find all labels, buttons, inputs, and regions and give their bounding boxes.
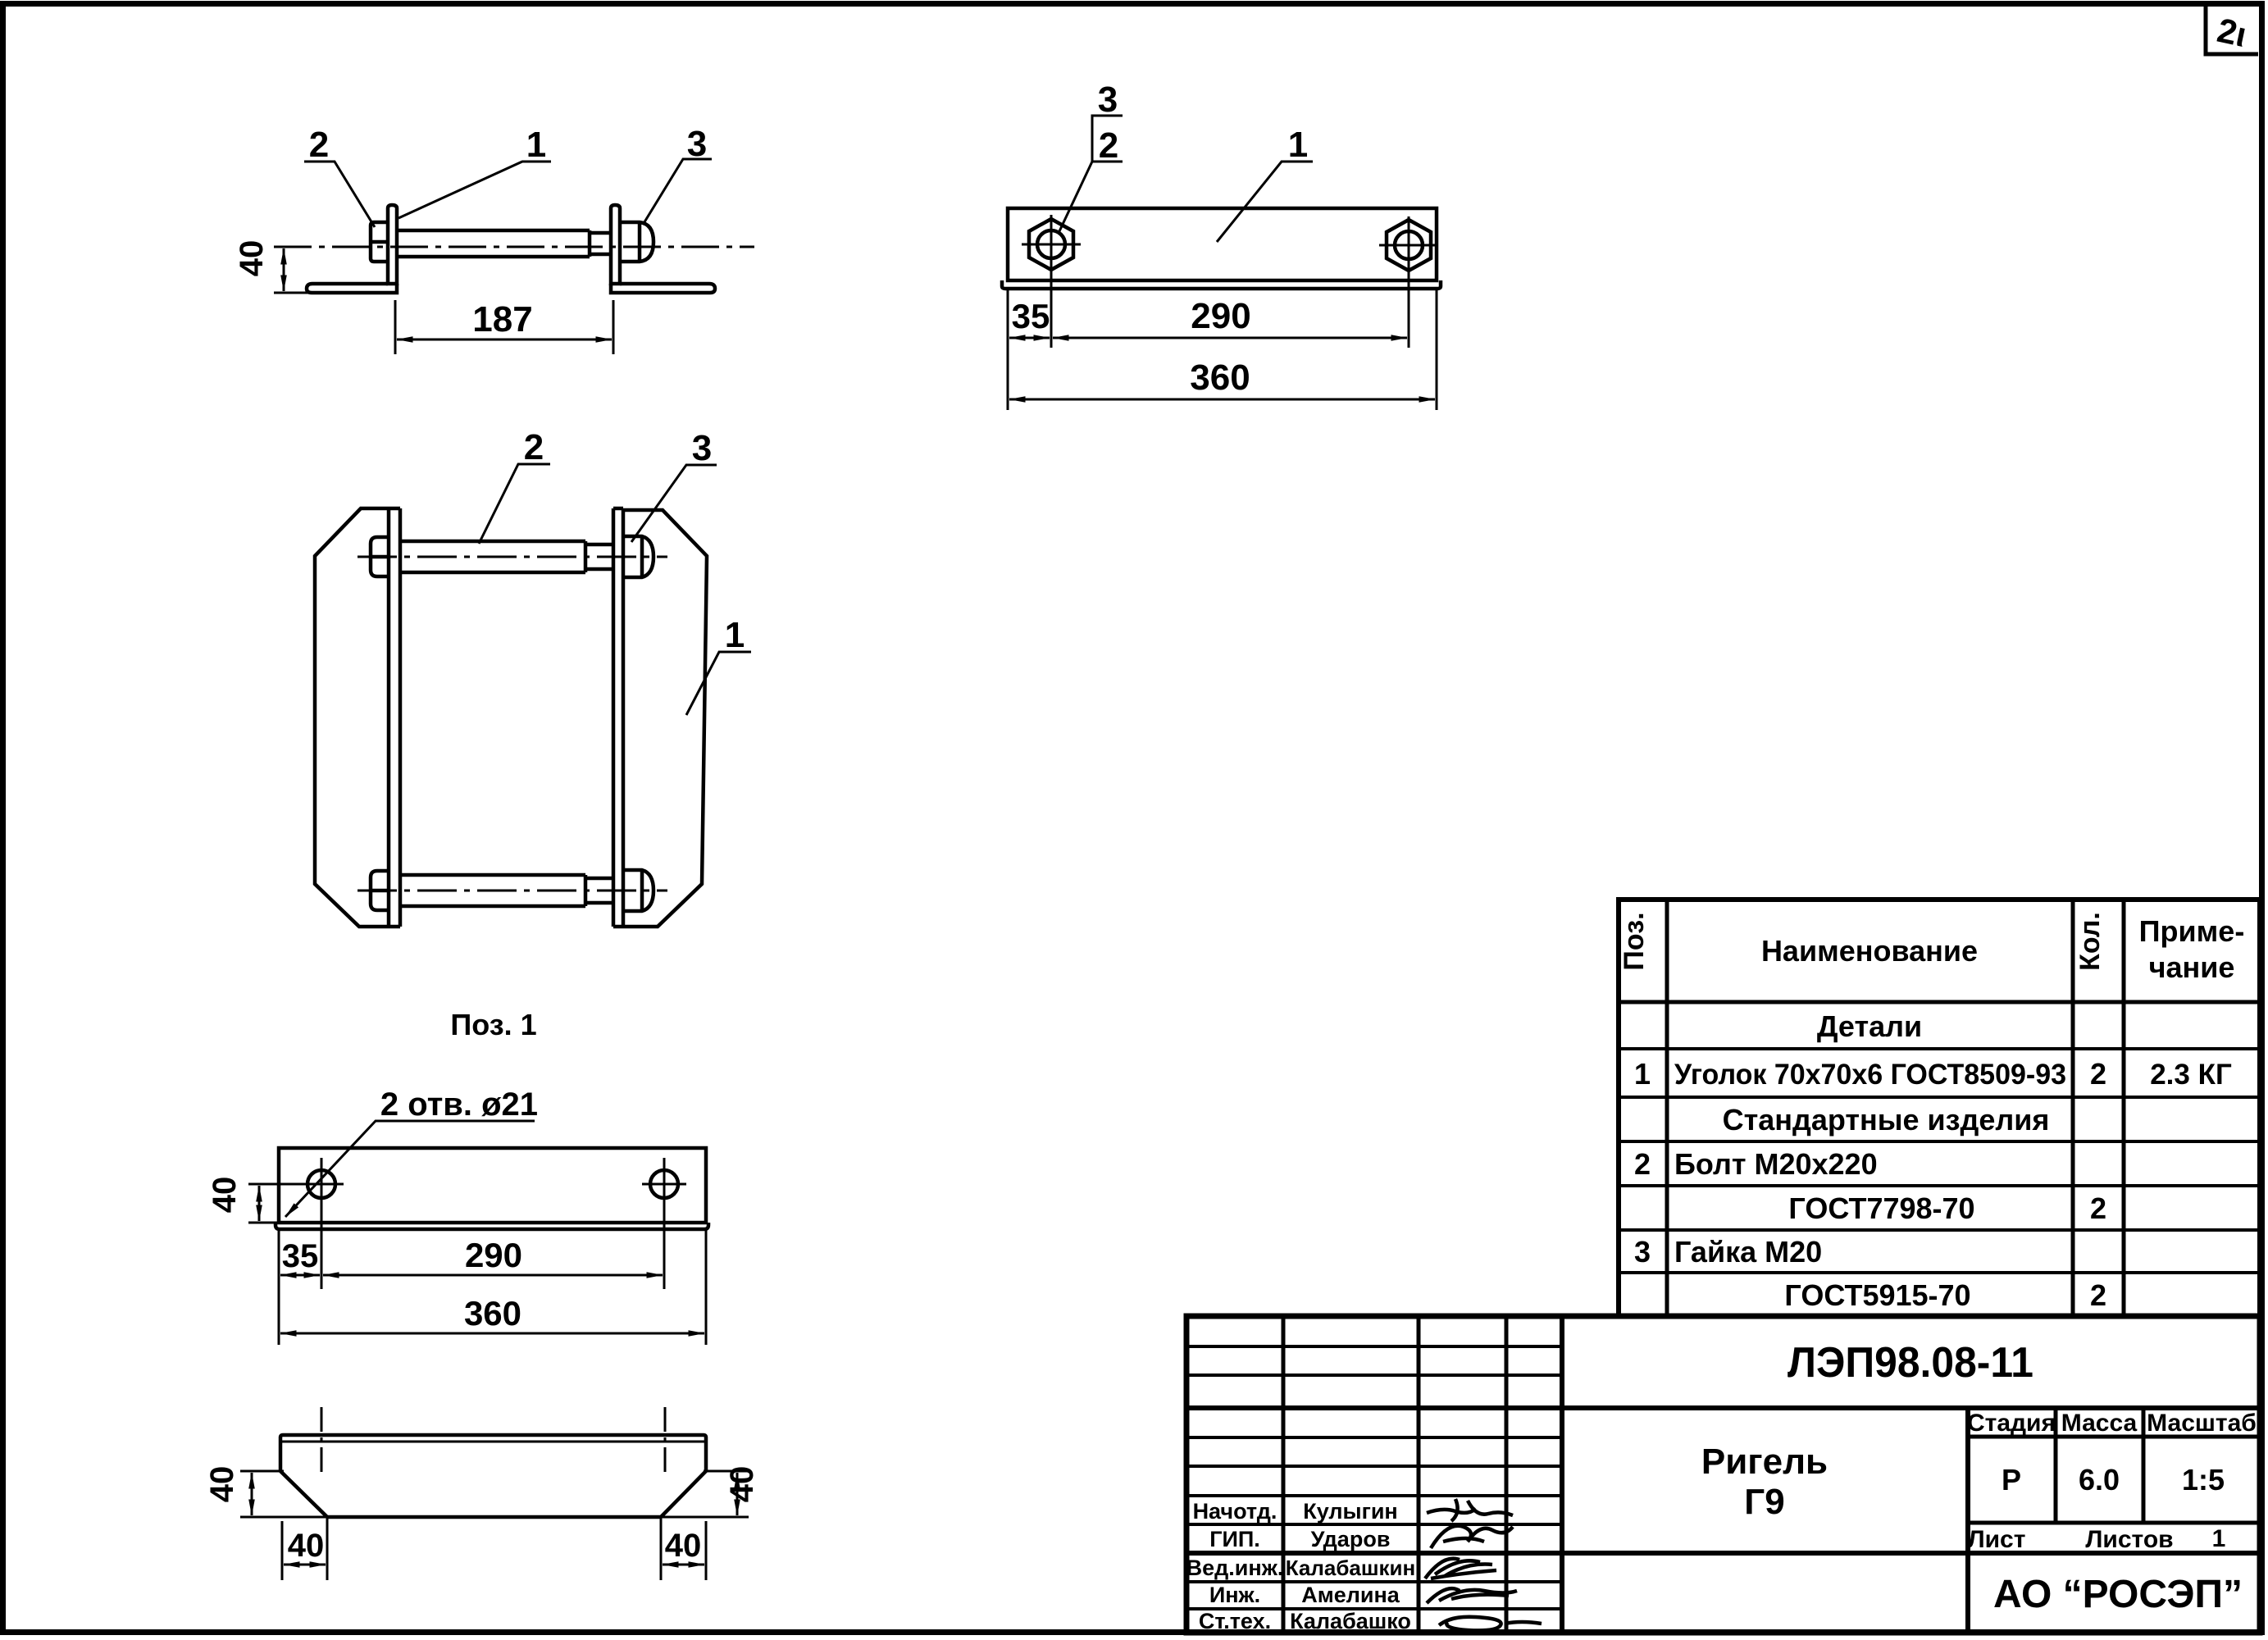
svg-text:Вед.инж.: Вед.инж. <box>1186 1556 1284 1580</box>
svg-text:Амелина: Амелина <box>1301 1583 1400 1607</box>
svg-text:Гайка М20: Гайка М20 <box>1674 1235 1822 1269</box>
svg-text:Ст.тех.: Ст.тех. <box>1199 1609 1271 1633</box>
svg-text:2: 2 <box>1634 1147 1651 1181</box>
svg-text:360: 360 <box>464 1294 521 1332</box>
svg-text:2 отв. ø21: 2 отв. ø21 <box>380 1086 538 1123</box>
svg-text:1: 1 <box>526 125 546 165</box>
svg-text:360: 360 <box>1190 358 1250 398</box>
svg-text:чание: чание <box>2149 950 2235 984</box>
svg-text:Поз.: Поз. <box>1619 912 1650 970</box>
svg-text:Калабашко: Калабашко <box>1290 1609 1411 1633</box>
svg-text:3: 3 <box>1098 80 1118 120</box>
svg-text:290: 290 <box>1191 296 1250 336</box>
svg-text:Масса: Масса <box>2061 1410 2138 1437</box>
svg-text:Инж.: Инж. <box>1209 1583 1260 1607</box>
svg-text:ЛЭП98.08-11: ЛЭП98.08-11 <box>1788 1339 2033 1387</box>
svg-text:Наименование: Наименование <box>1761 934 1978 968</box>
svg-text:АО “РОСЭП”: АО “РОСЭП” <box>1993 1573 2243 1616</box>
svg-text:1: 1 <box>725 615 745 655</box>
svg-text:Ригель: Ригель <box>1701 1442 1828 1482</box>
svg-text:Кол.: Кол. <box>2074 912 2106 971</box>
svg-text:Начотд.: Начотд. <box>1193 1499 1277 1524</box>
svg-text:Поз. 1: Поз. 1 <box>450 1008 536 1041</box>
svg-text:ГОСТ5915-70: ГОСТ5915-70 <box>1784 1278 1970 1312</box>
svg-text:ГИП.: ГИП. <box>1209 1527 1260 1551</box>
svg-text:Приме-: Приме- <box>2139 914 2245 948</box>
svg-text:1:5: 1:5 <box>2182 1463 2225 1496</box>
svg-text:187: 187 <box>472 299 532 339</box>
svg-text:35: 35 <box>1012 297 1050 335</box>
svg-text:Листов: Листов <box>2085 1526 2173 1553</box>
svg-text:Р: Р <box>2002 1463 2021 1496</box>
svg-text:Калабашкин: Калабашкин <box>1286 1556 1416 1580</box>
svg-text:Кулыгин: Кулыгин <box>1303 1499 1398 1524</box>
svg-text:Стадия: Стадия <box>1967 1410 2056 1437</box>
svg-text:Детали: Детали <box>1817 1009 1922 1043</box>
svg-text:40: 40 <box>234 240 270 277</box>
svg-text:ГОСТ7798-70: ГОСТ7798-70 <box>1788 1191 1974 1225</box>
svg-text:290: 290 <box>465 1236 522 1274</box>
svg-text:3: 3 <box>692 428 712 468</box>
svg-text:1: 1 <box>1288 125 1308 165</box>
svg-text:Лист: Лист <box>1968 1526 2026 1553</box>
svg-text:40: 40 <box>204 1466 240 1503</box>
svg-text:2.3 КГ: 2.3 КГ <box>2150 1059 2232 1091</box>
svg-text:2: 2 <box>309 125 329 165</box>
svg-text:40: 40 <box>207 1177 243 1214</box>
svg-text:1: 1 <box>2212 1525 2226 1552</box>
svg-text:Уголок 70х70х6 ГОСТ8509-93: Уголок 70х70х6 ГОСТ8509-93 <box>1674 1059 2066 1091</box>
svg-text:6.0: 6.0 <box>2079 1463 2120 1496</box>
svg-text:Ударов: Ударов <box>1311 1527 1391 1551</box>
svg-text:Стандартные изделия: Стандартные изделия <box>1723 1103 2050 1137</box>
svg-text:2: 2 <box>524 427 544 467</box>
svg-text:2: 2 <box>2090 1191 2106 1225</box>
svg-text:40: 40 <box>288 1528 325 1564</box>
svg-text:2: 2 <box>2090 1057 2106 1091</box>
svg-text:3: 3 <box>1634 1235 1651 1269</box>
svg-text:40: 40 <box>724 1466 760 1503</box>
svg-text:2ι: 2ι <box>2214 11 2250 54</box>
svg-text:2: 2 <box>1099 125 1118 166</box>
svg-text:Г9: Г9 <box>1744 1482 1784 1522</box>
svg-text:Масштаб: Масштаб <box>2147 1410 2257 1437</box>
svg-text:1: 1 <box>1634 1057 1651 1091</box>
svg-text:40: 40 <box>665 1528 702 1564</box>
svg-text:Болт М20х220: Болт М20х220 <box>1674 1147 1878 1181</box>
svg-text:35: 35 <box>282 1238 319 1274</box>
svg-text:2: 2 <box>2090 1278 2106 1312</box>
